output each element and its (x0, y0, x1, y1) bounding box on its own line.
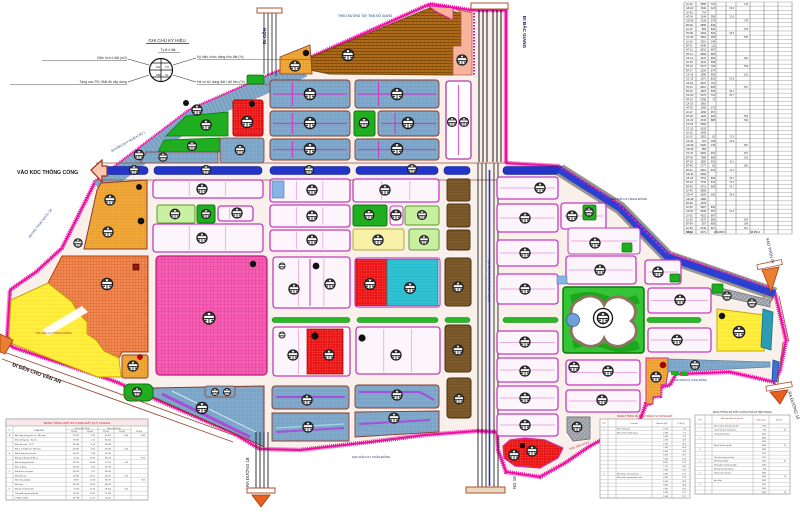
svg-text:424: 424 (711, 7, 716, 10)
svg-text:65.233: 65.233 (73, 484, 80, 486)
svg-text:11.325: 11.325 (73, 435, 80, 437)
svg-text:199: 199 (711, 140, 716, 143)
svg-text:BT-40: BT-40 (686, 165, 693, 168)
svg-text:Đất ao hồ, mương thoát nước: Đất ao hồ, mương thoát nước (617, 476, 642, 479)
svg-text:CX-14: CX-14 (686, 57, 694, 60)
svg-text:535: 535 (711, 90, 716, 93)
svg-text:15.33: 15.33 (90, 489, 96, 491)
svg-text:Đất khác: Đất khác (15, 483, 23, 486)
svg-text:43.7: 43.7 (730, 186, 735, 188)
svg-text:Hệ thống cột điện: Hệ thống cột điện (714, 460, 728, 463)
svg-text:68.622: 68.622 (105, 484, 112, 486)
svg-text:19.51: 19.51 (90, 475, 96, 477)
svg-text:10.3: 10.3 (682, 462, 686, 464)
svg-text:12.5: 12.5 (682, 492, 686, 494)
svg-text:59: 59 (784, 430, 786, 432)
svg-text:CX-43: CX-43 (686, 177, 694, 180)
svg-text:887: 887 (711, 214, 716, 217)
svg-text:26: 26 (784, 476, 786, 478)
svg-text:BT-06: BT-06 (686, 24, 693, 27)
svg-text:92.868: 92.868 (105, 444, 112, 446)
svg-text:26.7: 26.7 (682, 455, 686, 457)
svg-text:4850: 4850 (762, 441, 766, 443)
svg-text:3061: 3061 (700, 36, 706, 39)
svg-text:6333: 6333 (700, 127, 706, 130)
svg-text:GD-47: GD-47 (686, 194, 694, 197)
svg-text:THEO ĐƯỜNG TÂY THÁI ĐỒ GIANG: THEO ĐƯỜNG TÂY THÁI ĐỒ GIANG (338, 13, 393, 18)
svg-text:6074: 6074 (700, 231, 706, 234)
svg-text:CC-37: CC-37 (686, 152, 694, 155)
svg-text:273: 273 (711, 107, 716, 110)
svg-text:714: 714 (702, 11, 707, 14)
svg-text:83.186: 83.186 (73, 444, 80, 446)
svg-text:78.104: 78.104 (105, 489, 112, 491)
svg-text:DT(m2): DT(m2) (103, 431, 109, 433)
svg-text:LK-27: LK-27 (686, 111, 693, 114)
svg-text:451: 451 (711, 152, 716, 155)
svg-text:5: 5 (700, 472, 701, 474)
svg-text:863: 863 (702, 28, 707, 31)
svg-text:487: 487 (711, 49, 716, 52)
svg-text:2853: 2853 (700, 102, 706, 105)
svg-text:Điều chỉnh QH: Điều chỉnh QH (107, 427, 121, 430)
svg-text:Đất giao thông, bãi đỗ xe: Đất giao thông, bãi đỗ xe (15, 456, 39, 459)
svg-text:Diện tích ô đất (m2): Diện tích ô đất (m2) (97, 56, 127, 60)
svg-text:8.266: 8.266 (663, 481, 668, 483)
svg-text:3.526: 3.526 (663, 458, 668, 460)
svg-text:GD-35: GD-35 (686, 144, 694, 147)
svg-text:866: 866 (711, 86, 716, 89)
svg-text:5672: 5672 (700, 82, 706, 85)
svg-text:6904: 6904 (700, 123, 706, 126)
svg-text:HT-04: HT-04 (686, 15, 693, 18)
svg-text:Khối lượng: Khối lượng (757, 419, 766, 422)
svg-text:678: 678 (711, 169, 716, 172)
svg-text:Ký hiệu chức năng khu đất (%): Ký hiệu chức năng khu đất (%) (197, 55, 244, 59)
svg-text:72.0: 72.0 (682, 436, 686, 438)
svg-text:716: 716 (711, 3, 716, 6)
svg-text:3.823: 3.823 (663, 485, 668, 487)
svg-text:KH: KH (156, 65, 160, 69)
svg-text:Tường rào, bờ bao: Tường rào, bờ bao (714, 433, 729, 435)
svg-text:HT-16: HT-16 (686, 65, 693, 68)
svg-text:1371: 1371 (700, 78, 706, 81)
svg-text:HT-13: HT-13 (686, 53, 693, 56)
svg-text:5740: 5740 (700, 227, 706, 230)
svg-text:HT-44: HT-44 (686, 181, 693, 184)
svg-text:86.3: 86.3 (682, 481, 686, 483)
svg-text:5172: 5172 (700, 94, 706, 97)
svg-text:Hệ số sử dụng đất / chỉ tiêu (: Hệ số sử dụng đất / chỉ tiêu (%) (197, 80, 245, 84)
svg-text:4465: 4465 (762, 465, 766, 467)
svg-text:9601: 9601 (700, 86, 706, 89)
svg-text:26.589: 26.589 (73, 448, 80, 450)
svg-text:Đất ở làng xóm: Đất ở làng xóm (617, 428, 630, 431)
svg-text:Đường đất, đường cấp phối: Đường đất, đường cấp phối (714, 464, 737, 467)
svg-text:Loại đất: Loại đất (631, 422, 638, 425)
svg-text:2984: 2984 (762, 472, 766, 474)
svg-text:6.426: 6.426 (663, 492, 668, 494)
svg-text:278: 278 (711, 20, 716, 23)
svg-text:Đất di tích, tôn giáo: Đất di tích, tôn giáo (15, 470, 34, 473)
svg-text:20.5: 20.5 (682, 470, 686, 472)
svg-text:TỔNG CỘNG: TỔNG CỘNG (15, 497, 28, 500)
svg-text:ĐI CỔN: ĐI CỔN (261, 27, 267, 44)
svg-text:Tỷ lệ (%): Tỷ lệ (%) (677, 422, 685, 425)
svg-text:8559: 8559 (700, 189, 706, 192)
svg-text:5.672: 5.672 (663, 455, 668, 457)
svg-text:GD-51: GD-51 (686, 210, 694, 213)
svg-text:6568: 6568 (700, 3, 706, 6)
svg-text:9693: 9693 (700, 53, 706, 56)
svg-text:HT-08: HT-08 (686, 32, 693, 35)
svg-text:DT(m2): DT(m2) (87, 431, 93, 433)
svg-text:699: 699 (711, 156, 716, 159)
svg-text:30.1: 30.1 (730, 161, 735, 163)
svg-text:LK-10: LK-10 (686, 40, 693, 43)
svg-text:17.121: 17.121 (105, 462, 112, 464)
svg-text:1065: 1065 (700, 107, 706, 110)
svg-text:GD-42: GD-42 (686, 173, 694, 176)
svg-text:2.553: 2.553 (663, 440, 668, 442)
svg-text:832: 832 (711, 78, 716, 81)
svg-text:8.619: 8.619 (663, 451, 668, 453)
svg-text:66.3: 66.3 (682, 443, 686, 445)
svg-text:1777: 1777 (700, 165, 706, 168)
svg-text:Đất công cộng, dịch vụ - hỗn h: Đất công cộng, dịch vụ - hỗn hợp (15, 434, 47, 437)
svg-text:Nội dung công trình phá dỡ: Nội dung công trình phá dỡ (721, 417, 744, 420)
svg-text:CX-18: CX-18 (686, 73, 694, 76)
svg-text:66.8: 66.8 (682, 447, 686, 449)
svg-text:32.8: 32.8 (682, 451, 686, 453)
svg-text:9.563: 9.563 (663, 436, 668, 438)
svg-text:3: 3 (603, 473, 604, 475)
svg-text:CX-30: CX-30 (686, 123, 694, 126)
svg-text:DT(m2): DT(m2) (71, 431, 77, 433)
svg-text:LK-50: LK-50 (686, 206, 693, 209)
svg-text:6264: 6264 (700, 173, 706, 176)
svg-text:7226: 7226 (762, 426, 766, 428)
svg-text:56.7: 56.7 (730, 178, 735, 180)
svg-text:1858: 1858 (762, 449, 766, 451)
svg-text:859: 859 (711, 223, 716, 226)
svg-text:1726: 1726 (762, 457, 766, 459)
svg-text:167: 167 (702, 140, 707, 143)
svg-text:306: 306 (763, 430, 766, 432)
svg-text:2: 2 (700, 437, 701, 439)
svg-text:KHU DÂN CƯ THÔN AN ĐỒNG: KHU DÂN CƯ THÔN AN ĐỒNG (36, 332, 72, 335)
svg-text:Đất trường học, nhà trẻ: Đất trường học, nhà trẻ (15, 439, 38, 442)
svg-text:48,650.2: 48,650.2 (750, 231, 760, 234)
svg-text:LK-33: LK-33 (686, 136, 693, 139)
svg-text:296: 296 (711, 15, 716, 18)
svg-text:Tầng cao TB / Mật độ xây dựng: Tầng cao TB / Mật độ xây dựng (79, 80, 127, 84)
svg-text:1.446: 1.446 (663, 496, 668, 498)
svg-text:72.9: 72.9 (730, 137, 735, 139)
svg-text:14.639: 14.639 (73, 466, 80, 468)
svg-text:GD-36: GD-36 (686, 148, 694, 151)
svg-text:Đất nông nghiệp: Đất nông nghiệp (15, 479, 31, 482)
svg-text:22.230: 22.230 (105, 453, 112, 455)
svg-text:28.4: 28.4 (682, 466, 686, 468)
svg-text:9346: 9346 (700, 44, 706, 47)
svg-text:LK-03: LK-03 (686, 11, 693, 14)
svg-text:796: 796 (711, 65, 716, 68)
svg-text:6928: 6928 (762, 480, 766, 482)
svg-text:84.0: 84.0 (730, 8, 735, 10)
svg-text:DT(m2): DT(m2) (119, 431, 125, 433)
svg-text:Tổng: Tổng (686, 231, 692, 234)
svg-text:LK-32: LK-32 (686, 131, 693, 134)
svg-text:574: 574 (711, 69, 716, 72)
svg-text:3: 3 (700, 449, 701, 451)
svg-text:CX-29: CX-29 (686, 119, 694, 122)
svg-text:Tỷ lệ ô đất: Tỷ lệ ô đất (161, 48, 176, 52)
svg-text:LOẠI ĐẤT: LOẠI ĐẤT (34, 429, 45, 432)
svg-text:BẢNG THỐNG KÊ KHỐI LƯỢNG PHÁ D: BẢNG THỐNG KÊ KHỐI LƯỢNG PHÁ DỠ HIỆN TRẠ… (713, 411, 772, 414)
svg-text:658: 658 (763, 468, 766, 470)
svg-text:98.8: 98.8 (730, 195, 735, 197)
svg-text:3922: 3922 (700, 136, 706, 139)
svg-text:155: 155 (711, 36, 716, 39)
svg-text:8336: 8336 (700, 210, 706, 213)
svg-text:Đất cây xanh - TDTT: Đất cây xanh - TDTT (15, 443, 35, 446)
svg-text:3.359: 3.359 (663, 473, 668, 475)
svg-text:34.657: 34.657 (105, 475, 112, 477)
svg-text:5785: 5785 (700, 98, 706, 101)
svg-text:4.864: 4.864 (663, 477, 668, 479)
svg-text:6: 6 (700, 484, 701, 486)
svg-text:8811: 8811 (701, 49, 707, 52)
svg-text:BT-49: BT-49 (686, 202, 693, 205)
svg-text:620: 620 (711, 28, 716, 31)
svg-text:4.254: 4.254 (74, 457, 80, 459)
svg-text:82.440: 82.440 (105, 448, 112, 450)
svg-text:4022: 4022 (700, 214, 706, 217)
svg-text:RA ĐƯỜNG 1B: RA ĐƯỜNG 1B (245, 457, 250, 487)
svg-text:79.960: 79.960 (73, 440, 80, 442)
svg-text:81.9: 81.9 (730, 79, 735, 81)
svg-text:KHU DÂN CƯ ĐỊCH ĐỒNG: KHU DÂN CƯ ĐỊCH ĐỒNG (610, 196, 648, 201)
svg-text:42.798: 42.798 (73, 498, 80, 500)
svg-text:200: 200 (711, 194, 716, 197)
svg-text:17.77: 17.77 (90, 498, 96, 500)
svg-text:GHI CHÚ KÝ HIỆU: GHI CHÚ KÝ HIỆU (148, 38, 185, 43)
svg-text:6661: 6661 (762, 488, 766, 490)
svg-text:557: 557 (702, 223, 707, 226)
svg-text:21.8: 21.8 (730, 16, 735, 18)
svg-text:7.447: 7.447 (663, 488, 668, 490)
svg-text:507: 507 (711, 227, 716, 230)
svg-text:CX-20: CX-20 (686, 82, 694, 85)
svg-text:1459: 1459 (700, 131, 706, 134)
svg-text:31.882: 31.882 (73, 475, 80, 477)
svg-text:4.383: 4.383 (663, 432, 668, 434)
svg-text:CC-23: CC-23 (686, 94, 694, 97)
svg-text:GD-02: GD-02 (686, 7, 694, 10)
svg-text:BT-17: BT-17 (686, 69, 693, 72)
svg-text:NG 18: NG 18 (512, 476, 517, 489)
svg-text:1642: 1642 (700, 7, 706, 10)
svg-text:63.8: 63.8 (730, 141, 735, 143)
svg-text:54.3: 54.3 (682, 488, 686, 490)
svg-text:ĐI BẮC GIANG: ĐI BẮC GIANG (522, 16, 529, 49)
svg-text:78: 78 (784, 492, 786, 494)
svg-text:1420: 1420 (700, 115, 706, 118)
svg-text:BẢNG TỔNG HỢP SỬ DỤNG ĐẤT QUY: BẢNG TỔNG HỢP SỬ DỤNG ĐẤT QUY HOẠCH (44, 420, 110, 425)
svg-text:71.4: 71.4 (730, 182, 735, 184)
svg-text:HT-21: HT-21 (686, 86, 693, 89)
svg-text:84.452: 84.452 (105, 440, 112, 442)
svg-text:6201: 6201 (700, 40, 706, 43)
svg-text:1387: 1387 (762, 461, 766, 463)
svg-text:4440: 4440 (762, 476, 766, 478)
svg-text:666: 666 (711, 177, 716, 180)
svg-text:Đất quân sự: Đất quân sự (15, 474, 27, 477)
svg-text:7989: 7989 (700, 156, 706, 159)
svg-text:220: 220 (711, 115, 716, 118)
svg-text:Công trình phụ, chuồng trại: Công trình phụ, chuồng trại (714, 429, 736, 432)
svg-text:4170: 4170 (700, 57, 706, 60)
svg-text:5791: 5791 (700, 177, 706, 180)
svg-text:5441: 5441 (762, 433, 766, 435)
svg-text:4247: 4247 (762, 484, 766, 486)
svg-text:19.69: 19.69 (90, 457, 96, 459)
svg-text:1441: 1441 (700, 61, 706, 64)
svg-text:BT-11: BT-11 (686, 44, 693, 47)
svg-text:KHU DÂN CƯ XUÂN ĐỒNG: KHU DÂN CƯ XUÂN ĐỒNG (352, 454, 391, 459)
svg-text:CC-31: CC-31 (686, 127, 694, 130)
svg-text:808: 808 (711, 185, 716, 188)
svg-text:18: 18 (784, 445, 786, 447)
svg-text:BT-39: BT-39 (686, 160, 693, 163)
svg-text:Giếng nước, bể nước: Giếng nước, bể nước (714, 471, 731, 474)
svg-text:HT-28: HT-28 (686, 115, 693, 118)
svg-text:888: 888 (711, 119, 716, 122)
svg-text:5320: 5320 (700, 144, 706, 147)
svg-text:Đất ở thôn Ổi hiện trạng: Đất ở thôn Ổi hiện trạng (617, 431, 637, 434)
svg-text:149: 149 (711, 40, 716, 43)
svg-text:2128: 2128 (700, 20, 706, 23)
svg-text:LK-52: LK-52 (686, 214, 693, 217)
svg-text:Ghi chú: Ghi chú (776, 420, 782, 422)
svg-text:761: 761 (711, 82, 716, 85)
svg-text:5727: 5727 (700, 65, 706, 68)
svg-text:12.68: 12.68 (90, 480, 96, 482)
svg-text:LK-01: LK-01 (686, 3, 693, 6)
svg-text:2463: 2463 (700, 32, 706, 35)
svg-text:1: 1 (603, 429, 604, 431)
svg-text:550: 550 (711, 73, 716, 76)
svg-text:111: 111 (711, 44, 715, 47)
svg-text:20.25: 20.25 (90, 493, 96, 495)
svg-text:CC-19: CC-19 (686, 78, 694, 81)
svg-text:72.594: 72.594 (105, 498, 112, 500)
svg-text:72.163: 72.163 (105, 493, 112, 495)
svg-text:6026: 6026 (700, 194, 706, 197)
svg-text:CX-34: CX-34 (686, 140, 694, 143)
svg-text:QH chi tiết 1/500: QH chi tiết 1/500 (75, 427, 91, 430)
svg-text:Mương tưới tiêu thủy lợi: Mương tưới tiêu thủy lợi (714, 467, 734, 470)
svg-text:2590: 2590 (700, 73, 706, 76)
svg-text:LK-53: LK-53 (686, 218, 693, 221)
svg-text:CC-09: CC-09 (686, 36, 694, 39)
svg-text:3754: 3754 (762, 453, 766, 455)
svg-text:BT-22: BT-22 (686, 90, 693, 93)
svg-text:LK-55: LK-55 (686, 227, 693, 230)
svg-text:38.613: 38.613 (105, 471, 112, 473)
svg-text:8.3: 8.3 (683, 429, 686, 431)
svg-text:45.259: 45.259 (73, 462, 80, 464)
svg-text:Đất hạ tầng kỹ thuật: Đất hạ tầng kỹ thuật (15, 461, 34, 464)
svg-text:Ao hồ lấp: Ao hồ lấp (714, 479, 722, 482)
svg-text:GD-48: GD-48 (686, 198, 694, 201)
svg-text:8.423: 8.423 (663, 462, 668, 464)
svg-text:Mồ mả di dời, quy tập: Mồ mả di dời, quy tập (714, 444, 731, 447)
svg-text:HT-24: HT-24 (686, 98, 693, 101)
svg-text:4378: 4378 (700, 202, 706, 205)
svg-text:VÀO KDC THỐNG CỔNG: VÀO KDC THỐNG CỔNG (17, 169, 78, 176)
svg-text:387: 387 (711, 210, 716, 213)
svg-text:BT-45: BT-45 (686, 185, 693, 188)
svg-text:4: 4 (700, 461, 701, 463)
svg-text:712: 712 (711, 94, 716, 97)
svg-text:9555: 9555 (700, 24, 706, 27)
svg-text:3.993: 3.993 (74, 489, 80, 491)
svg-text:LK-15: LK-15 (686, 61, 693, 64)
svg-text:Tổng đất xây dựng đô thị: Tổng đất xây dựng đô thị (15, 492, 39, 495)
svg-text:4156: 4156 (700, 111, 706, 114)
svg-text:6057: 6057 (700, 169, 706, 172)
svg-text:61.301: 61.301 (105, 435, 112, 437)
svg-text:Đất dự trữ phát triển: Đất dự trữ phát triển (15, 488, 35, 491)
svg-text:7734: 7734 (700, 181, 706, 184)
svg-text:9263: 9263 (700, 152, 706, 155)
svg-text:1: 1 (700, 426, 701, 428)
svg-text:99.1: 99.1 (730, 91, 735, 93)
svg-text:5.563: 5.563 (663, 447, 668, 449)
svg-text:8487: 8487 (762, 437, 766, 439)
svg-text:Đất cơ quan: Đất cơ quan (15, 465, 27, 468)
svg-text:4983: 4983 (700, 198, 706, 201)
svg-text:85.697: 85.697 (105, 480, 112, 482)
svg-text:43: 43 (784, 461, 786, 463)
svg-text:2343: 2343 (700, 119, 706, 122)
svg-text:Đất ở mới (liền kề, biệt thự): Đất ở mới (liền kề, biệt thự) (15, 447, 41, 450)
svg-text:HT-12: HT-12 (686, 49, 693, 52)
svg-text:91.3: 91.3 (730, 211, 735, 213)
svg-text:5927: 5927 (700, 206, 706, 209)
svg-text:2.673: 2.673 (663, 429, 668, 431)
svg-text:649: 649 (711, 24, 716, 27)
svg-text:25.945: 25.945 (105, 466, 112, 468)
svg-text:9.720: 9.720 (663, 443, 668, 445)
svg-text:GD-05: GD-05 (686, 20, 694, 23)
svg-text:CX-25: CX-25 (686, 102, 694, 105)
svg-text:LK-07: LK-07 (686, 28, 693, 31)
svg-text:Nhà ở cấp 4, mái ngói, mái tôn: Nhà ở cấp 4, mái ngói, mái tôn (714, 425, 739, 428)
svg-text:BT-41: BT-41 (686, 169, 693, 172)
svg-text:60.511: 60.511 (73, 453, 80, 455)
svg-text:BẢNG THỐNG KÊ HIỆN TRẠNG SỬ DỤ: BẢNG THỐNG KÊ HIỆN TRẠNG SỬ DỤNG ĐẤT (617, 415, 673, 418)
svg-text:56.8: 56.8 (682, 485, 686, 487)
svg-text:Cây cối hoa màu các loại: Cây cối hoa màu các loại (714, 456, 735, 459)
svg-text:Diện tích (m2): Diện tích (m2) (656, 422, 668, 425)
svg-text:541: 541 (711, 181, 716, 184)
svg-text:HT-26: HT-26 (686, 107, 693, 110)
svg-text:71.7: 71.7 (682, 496, 686, 498)
svg-text:13.1: 13.1 (730, 170, 735, 172)
